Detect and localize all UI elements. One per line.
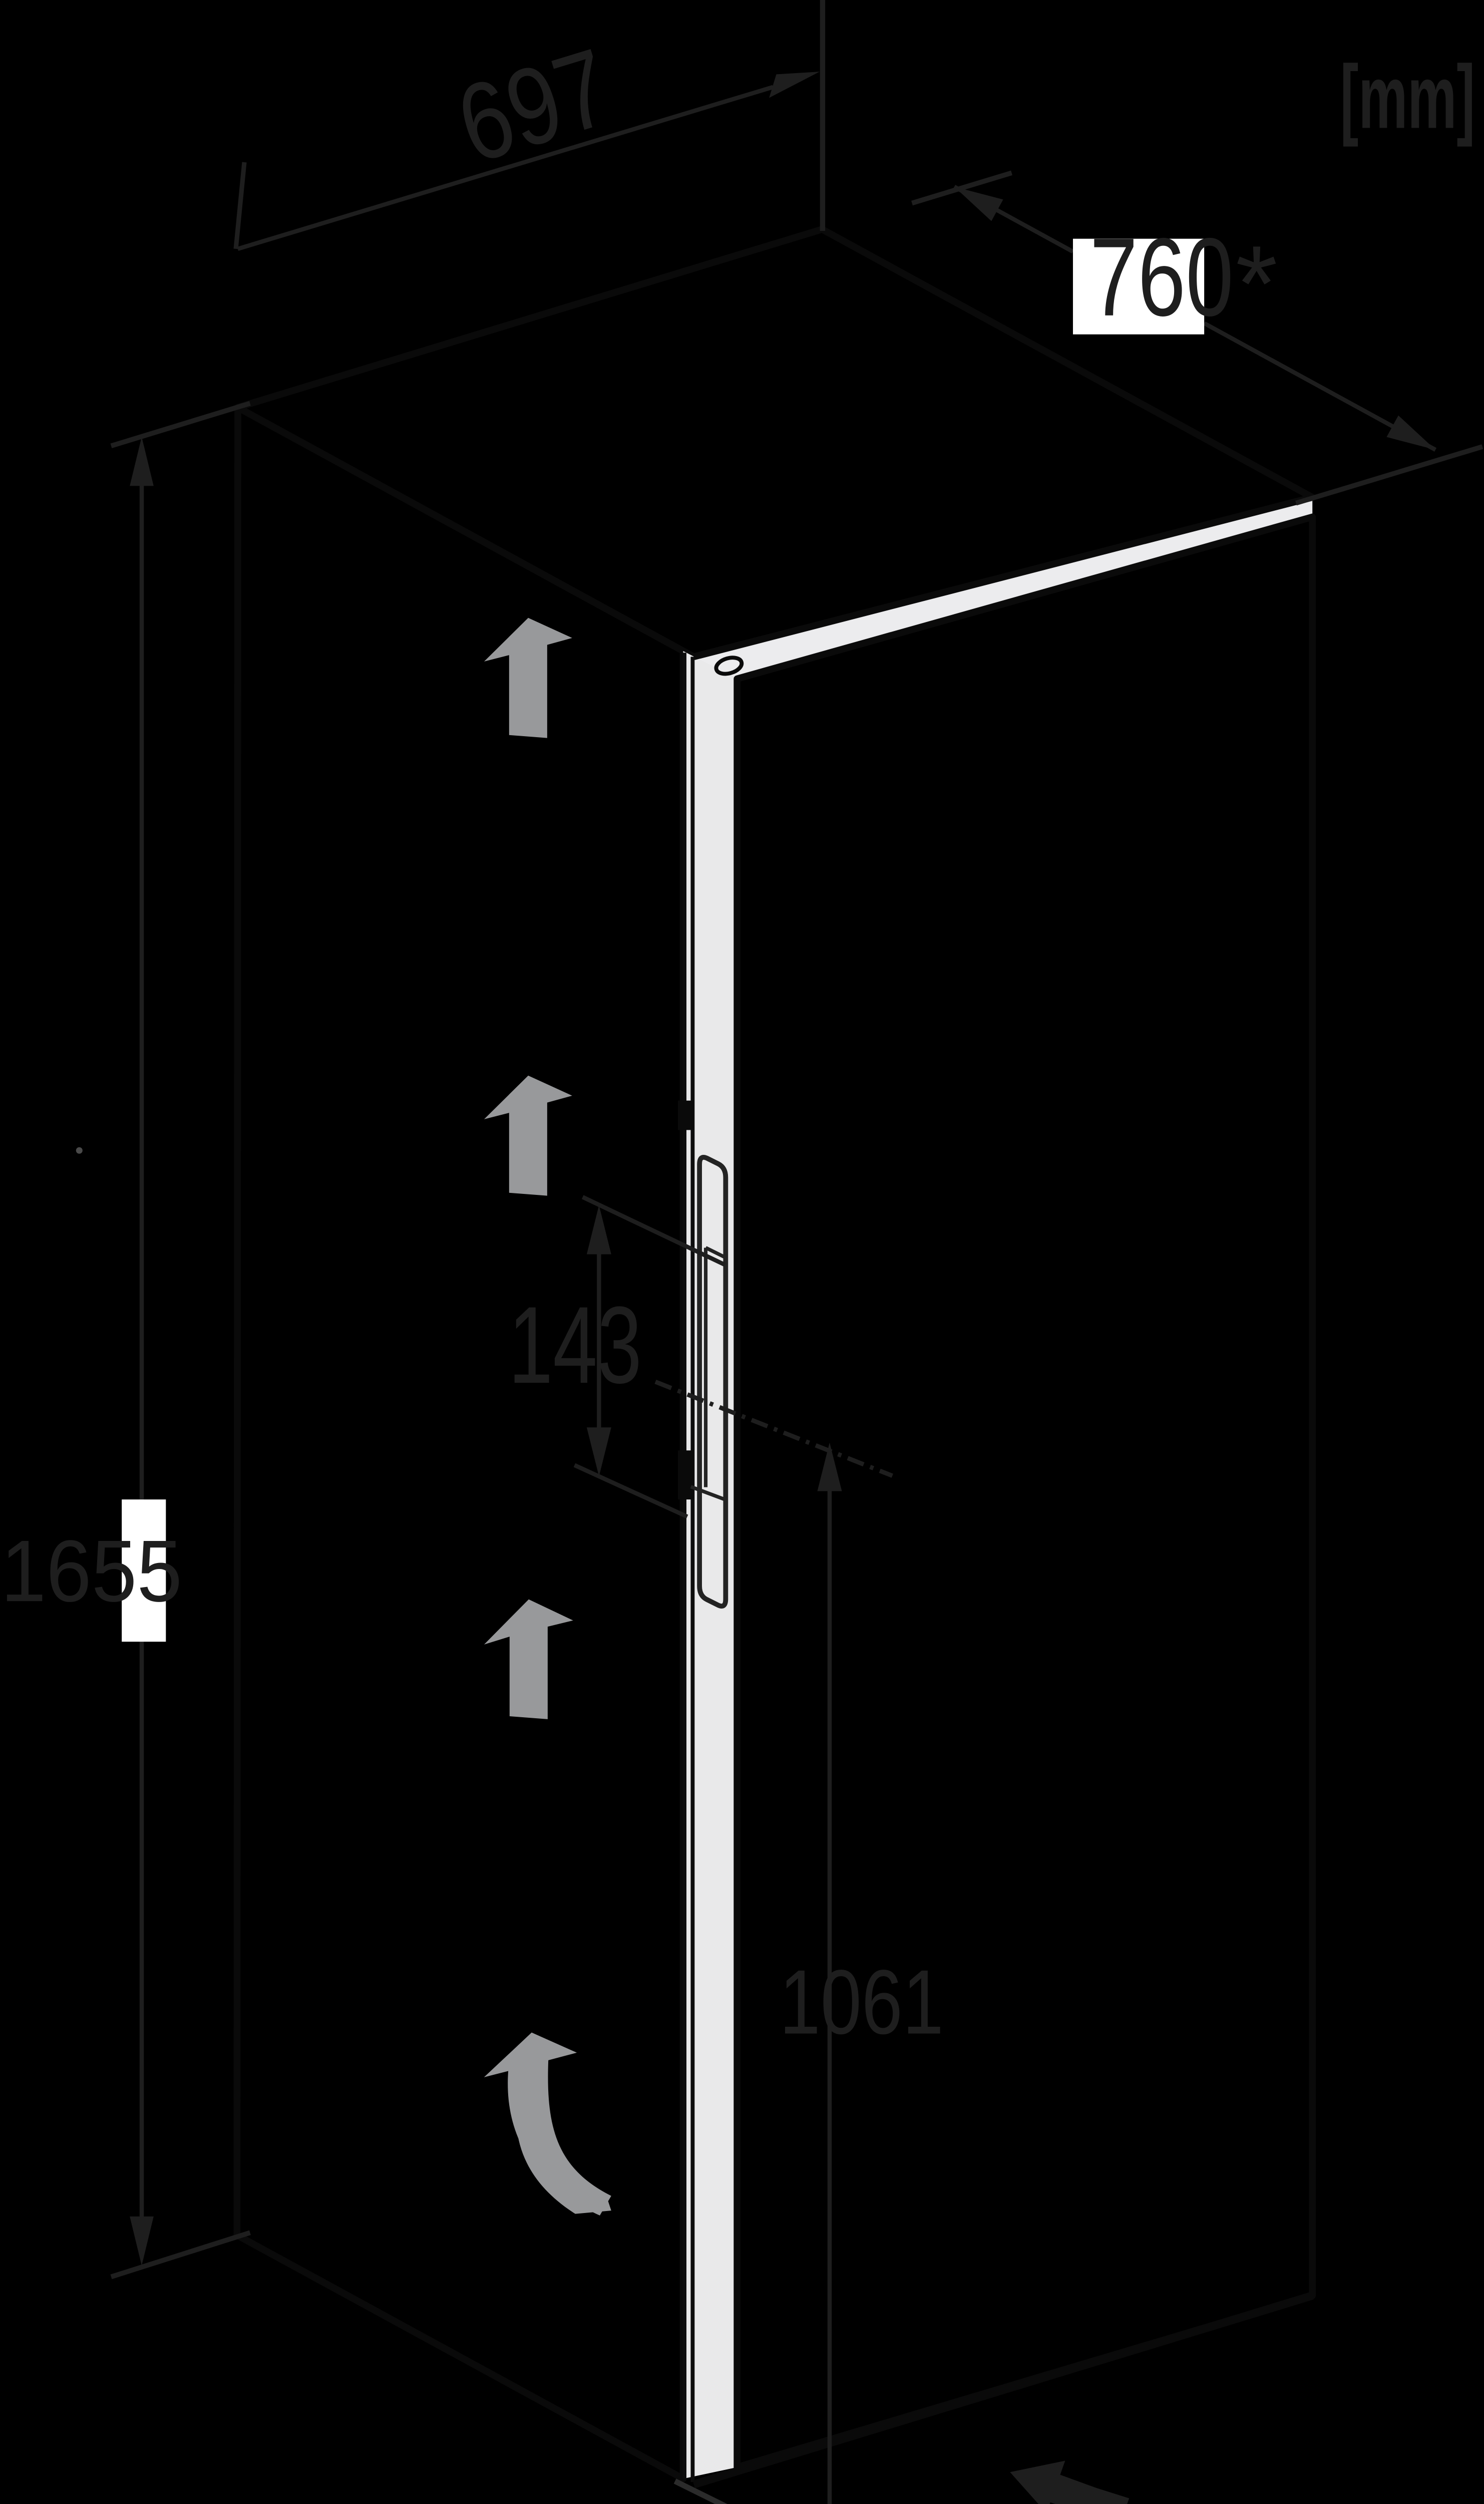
background [0, 1, 1484, 2504]
unit-badge-mm: [mm] [1340, 47, 1475, 147]
label-height-1655: 1655 [1, 1522, 182, 1620]
label-handle-143: 143 [509, 1284, 642, 1406]
dimension-diagram-svg: 697 760 * [mm] 1655 143 [0, 0, 1484, 2504]
label-handle-height-1061: 1061 [780, 1951, 944, 2053]
hinge-mark-upper [678, 1101, 693, 1130]
hinge-mark-lower [678, 1450, 693, 1499]
print-dot [76, 1147, 83, 1154]
diagram-stage: 697 760 * [mm] 1655 143 [0, 0, 1484, 2504]
label-depth-asterisk: * [1236, 223, 1278, 344]
label-depth-760: 760 [1090, 215, 1234, 340]
